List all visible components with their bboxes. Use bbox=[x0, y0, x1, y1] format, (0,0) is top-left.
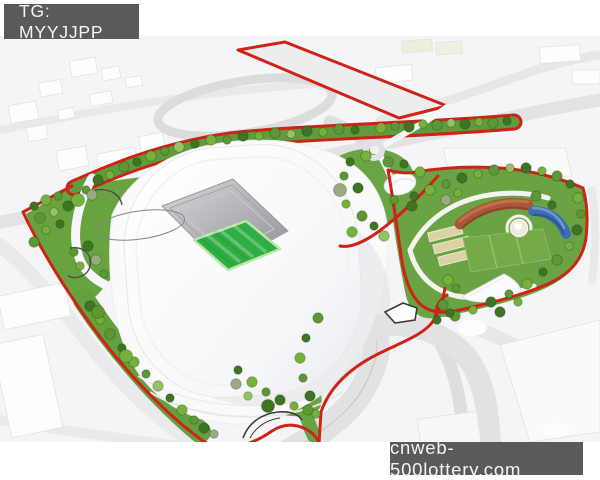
masterplan-render bbox=[0, 0, 600, 480]
watermark-site-label: cnweb-500lottery.com bbox=[390, 442, 583, 475]
stadium-roof bbox=[118, 138, 369, 404]
dome-pavilion bbox=[514, 222, 522, 230]
screenshot-root: TG: MYYJJPP cnweb-500lottery.com bbox=[0, 0, 600, 480]
watermark-telegram-label: TG: MYYJJPP bbox=[4, 4, 139, 39]
